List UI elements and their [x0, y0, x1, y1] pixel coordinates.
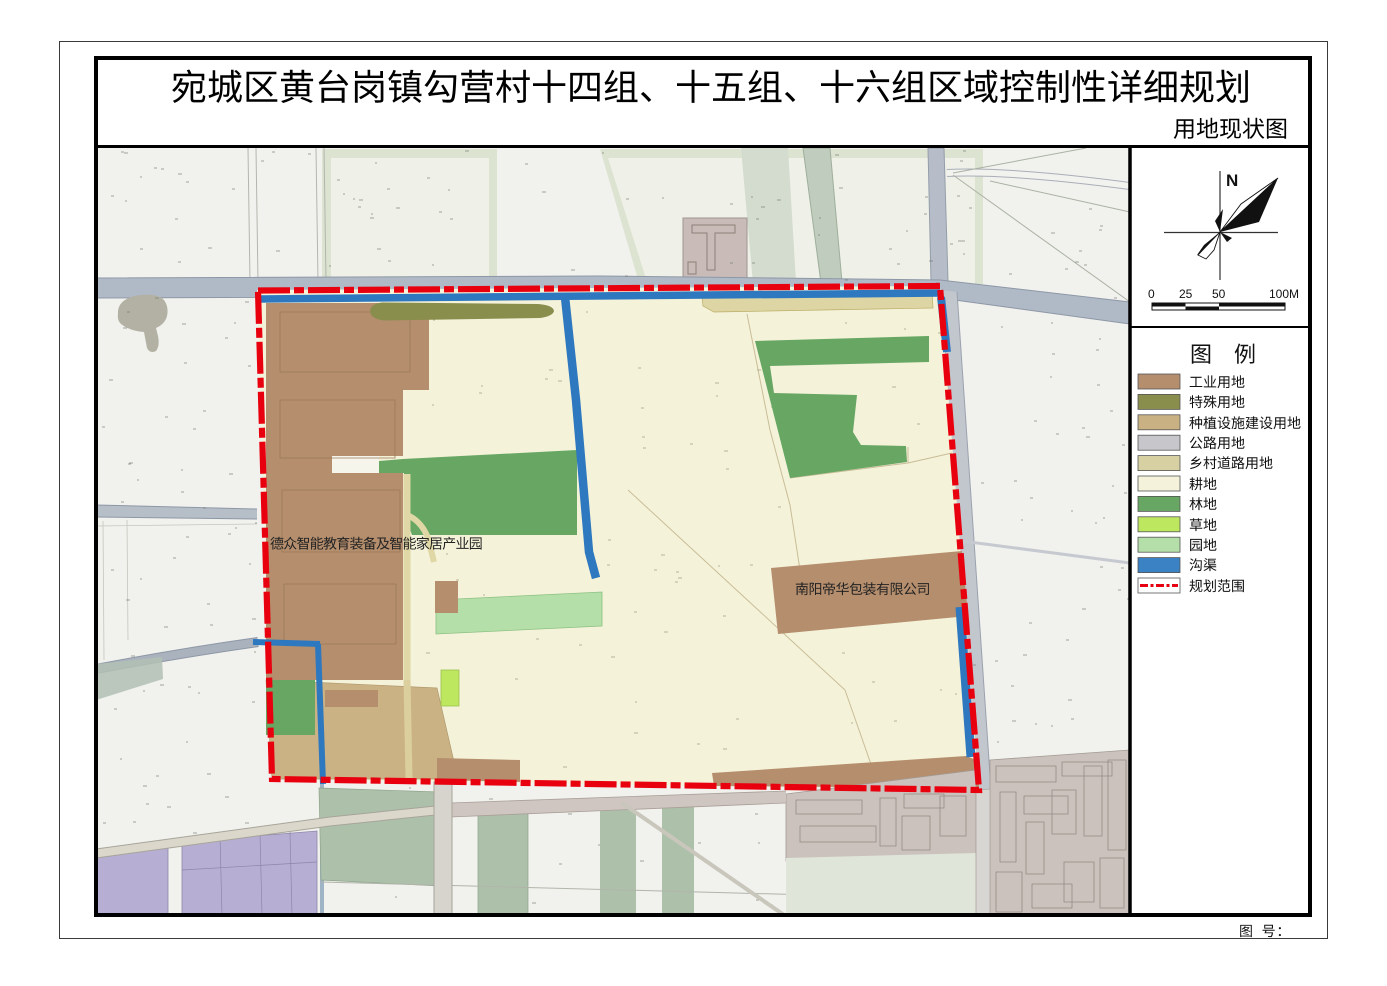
svg-text:50: 50: [1212, 287, 1226, 301]
svg-text:25: 25: [1179, 287, 1193, 301]
svg-text:100M: 100M: [1269, 287, 1299, 301]
svg-text:0: 0: [1148, 287, 1155, 301]
svg-text:N: N: [1226, 171, 1238, 190]
